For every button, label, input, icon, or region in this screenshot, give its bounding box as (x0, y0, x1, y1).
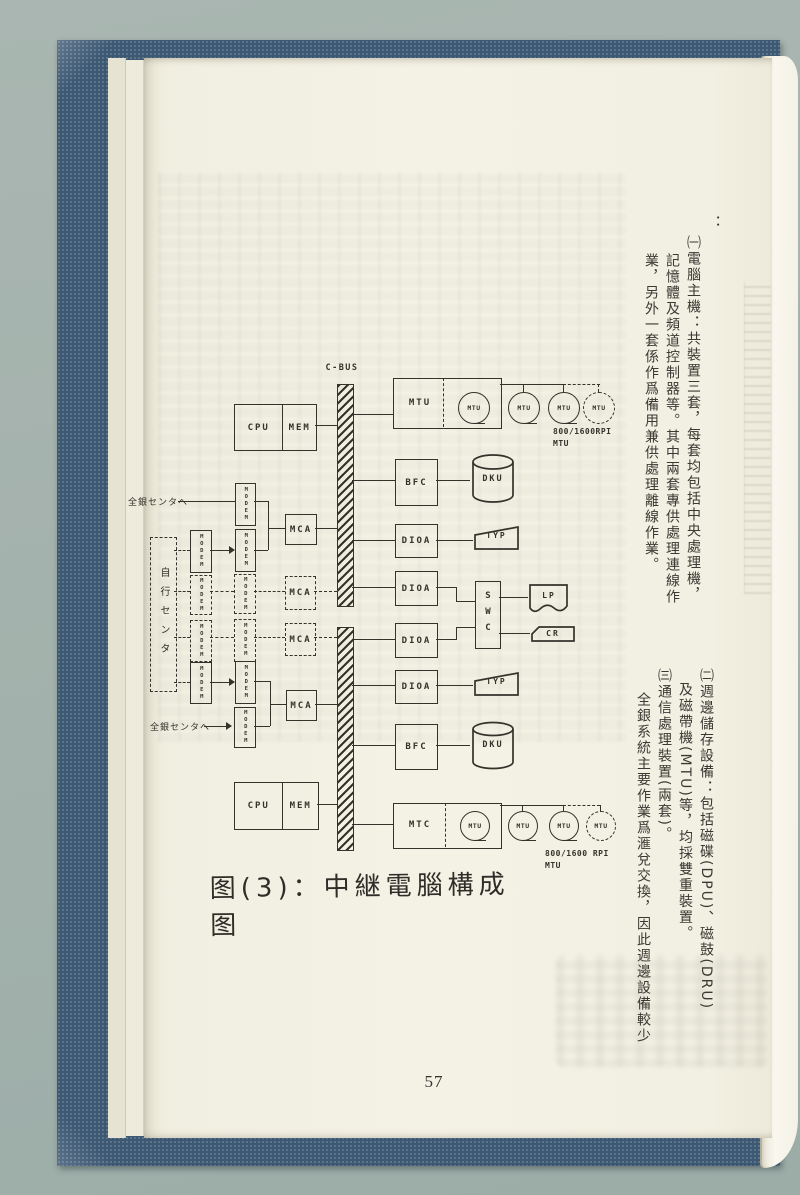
figure-caption: 图(3)：中継電腦構成图 (209, 864, 520, 942)
connector-line (352, 639, 395, 640)
tape-unit: MTU (508, 392, 540, 424)
modem-unit: MODEM (190, 530, 212, 573)
dioa-unit: DIOA (395, 524, 438, 558)
connector-line (268, 501, 269, 550)
connector-line (317, 804, 337, 805)
connector-line (436, 639, 456, 640)
connector-line (456, 601, 475, 602)
mtc-label: MTC (398, 820, 442, 830)
reel-stand-line (563, 423, 577, 424)
inner-page-edge (108, 58, 126, 1138)
connector-line (456, 627, 475, 628)
switch-unit: SWC (475, 581, 501, 649)
connector-line (315, 704, 337, 705)
text-column: 全銀系統主要作業爲滙兌交換，因此週邊設備較少 (632, 668, 653, 1068)
connector-line-dashed (314, 637, 337, 638)
connector-line (270, 704, 286, 705)
connector-line-dashed (314, 591, 337, 592)
tape-unit-optional: MTU (583, 392, 615, 424)
tape-unit: MTU (458, 392, 490, 424)
connector-line (352, 480, 395, 481)
reel-stand-line (523, 423, 537, 424)
connector-line (500, 384, 563, 385)
lp-label: LP (528, 591, 570, 600)
connector-line (436, 480, 470, 481)
c-bus-label: C-BUS (318, 363, 366, 373)
page-number: 57 (414, 1072, 454, 1092)
connector-line (204, 726, 228, 727)
paragraph-block-top: ： ㈠電腦主機：共裝置三套，每套均包括中央處理機， 記憶體及頻道控制器等。其中兩… (636, 215, 724, 640)
cpu-label: CPU (235, 801, 282, 811)
arrowhead (226, 722, 232, 730)
inner-page-edge (126, 60, 144, 1136)
text-column: ㈠電腦主機：共裝置三套，每套均包括中央處理機， (682, 215, 703, 640)
connector-line-dashed (254, 637, 285, 638)
dioa-unit: DIOA (395, 623, 438, 658)
dioa-unit: DIOA (395, 571, 438, 606)
arrowhead (229, 546, 235, 554)
cpu-mem-unit: CPU MEM (234, 782, 319, 830)
modem-unit: MODEM (190, 662, 212, 704)
cr-label: CR (530, 629, 576, 638)
tape-spec-note: MTU (553, 439, 569, 448)
connector-line (352, 745, 395, 746)
mca-unit: MCA (285, 514, 317, 545)
tape-unit-optional: MTU (586, 811, 616, 841)
text-column: ㈢通信處理裝置(兩套)。 (653, 668, 674, 1068)
tape-spec-note: 800/1600RPI (553, 427, 611, 436)
connector-line (254, 501, 268, 502)
dku-label: DKU (470, 740, 516, 750)
text-column: 記憶體及頻道控制器等。其中兩套專供處理連線作 (661, 215, 682, 640)
typ-label: TYP (473, 677, 520, 686)
tape-spec-note: 800/1600 RPI (545, 849, 609, 858)
connector-line (436, 587, 456, 588)
connector-line (456, 627, 457, 640)
text-column: ： (703, 215, 724, 640)
connector-line-dashed (254, 591, 285, 592)
connector-line-dashed (598, 384, 599, 392)
modem-unit: MODEM (234, 707, 256, 748)
divider-line (443, 378, 444, 427)
cpu-label: CPU (235, 423, 282, 433)
connector-line (436, 745, 470, 746)
modem-unit: MODEM (235, 529, 256, 572)
mem-label: MEM (282, 405, 316, 450)
tape-unit: MTU (460, 811, 490, 841)
dioa-unit: DIOA (395, 670, 438, 704)
bfc-unit: BFC (395, 724, 438, 770)
connector-line (254, 726, 270, 727)
bus-bar (337, 627, 354, 851)
connector-line-dashed (210, 637, 234, 638)
connector-line (352, 685, 395, 686)
photo-of-open-book: C-BUS CPU MEM MTU MTU MTU MTU MTU 800/16… (0, 0, 800, 1195)
cover-corner-fold (57, 1112, 111, 1166)
connector-line (268, 528, 285, 529)
connector-line (499, 597, 528, 598)
mca-unit: MCA (286, 690, 317, 721)
tape-spec-note: MTU (545, 861, 561, 870)
text-column: 及磁帶機(MTU)等，均採雙重裝置。 (674, 668, 695, 1068)
dku-label: DKU (470, 474, 516, 484)
modem-unit-optional: MODEM (190, 575, 212, 615)
modem-unit-optional: MODEM (190, 620, 212, 662)
own-center-box: 自行センタ (150, 537, 177, 692)
reel-stand-line (473, 423, 485, 424)
typ-label: TYP (473, 531, 520, 540)
connector-line (352, 824, 393, 825)
connector-line (178, 501, 235, 502)
tape-unit: MTU (548, 392, 580, 424)
connector-line (436, 685, 473, 686)
connector-line-dashed (210, 591, 234, 592)
connector-line (315, 425, 337, 426)
paragraph-block-bottom: ㈡週邊儲存設備：包括磁碟(DPU)、磁鼓(DRU) 及磁帶機(MTU)等，均採雙… (628, 668, 716, 1068)
connector-line (563, 384, 564, 392)
bfc-unit: BFC (395, 459, 438, 506)
reel-stand-line (522, 840, 536, 841)
connector-line (254, 550, 268, 551)
cpu-mem-unit: CPU MEM (234, 404, 317, 451)
mca-unit-optional: MCA (285, 623, 316, 656)
connector-line (500, 805, 563, 806)
mca-unit-optional: MCA (285, 576, 316, 610)
connector-line (352, 414, 393, 415)
arrowhead (229, 678, 235, 686)
tape-unit: MTU (549, 811, 579, 841)
mem-label: MEM (282, 783, 318, 829)
connector-line (523, 384, 524, 392)
reel-stand-line (474, 840, 486, 841)
text-column: ㈡週邊儲存設備：包括磁碟(DPU)、磁鼓(DRU) (695, 668, 716, 1068)
modem-unit: MODEM (235, 661, 256, 704)
connector-line (352, 540, 395, 541)
divider-line (445, 803, 446, 847)
connector-line (499, 633, 530, 634)
connector-line (456, 587, 457, 601)
mtu-label: MTU (398, 398, 442, 408)
reel-stand-line (563, 840, 577, 841)
connector-line-dashed (563, 384, 600, 385)
bus-bar (337, 384, 354, 607)
connector-line (315, 528, 337, 529)
tape-unit: MTU (508, 811, 538, 841)
text-column: 業，另外一套係作爲備用兼供處理離線作業。 (640, 215, 661, 640)
connector-line (352, 587, 395, 588)
zengin-center-label: 全銀センタへ (150, 720, 210, 733)
connector-line (436, 540, 473, 541)
modem-unit-optional: MODEM (234, 619, 256, 662)
cover-corner-fold (57, 40, 111, 94)
connector-line (254, 681, 270, 682)
connector-line-dashed (563, 805, 600, 806)
modem-unit-optional: MODEM (234, 574, 256, 614)
modem-unit: MODEM (235, 483, 256, 526)
